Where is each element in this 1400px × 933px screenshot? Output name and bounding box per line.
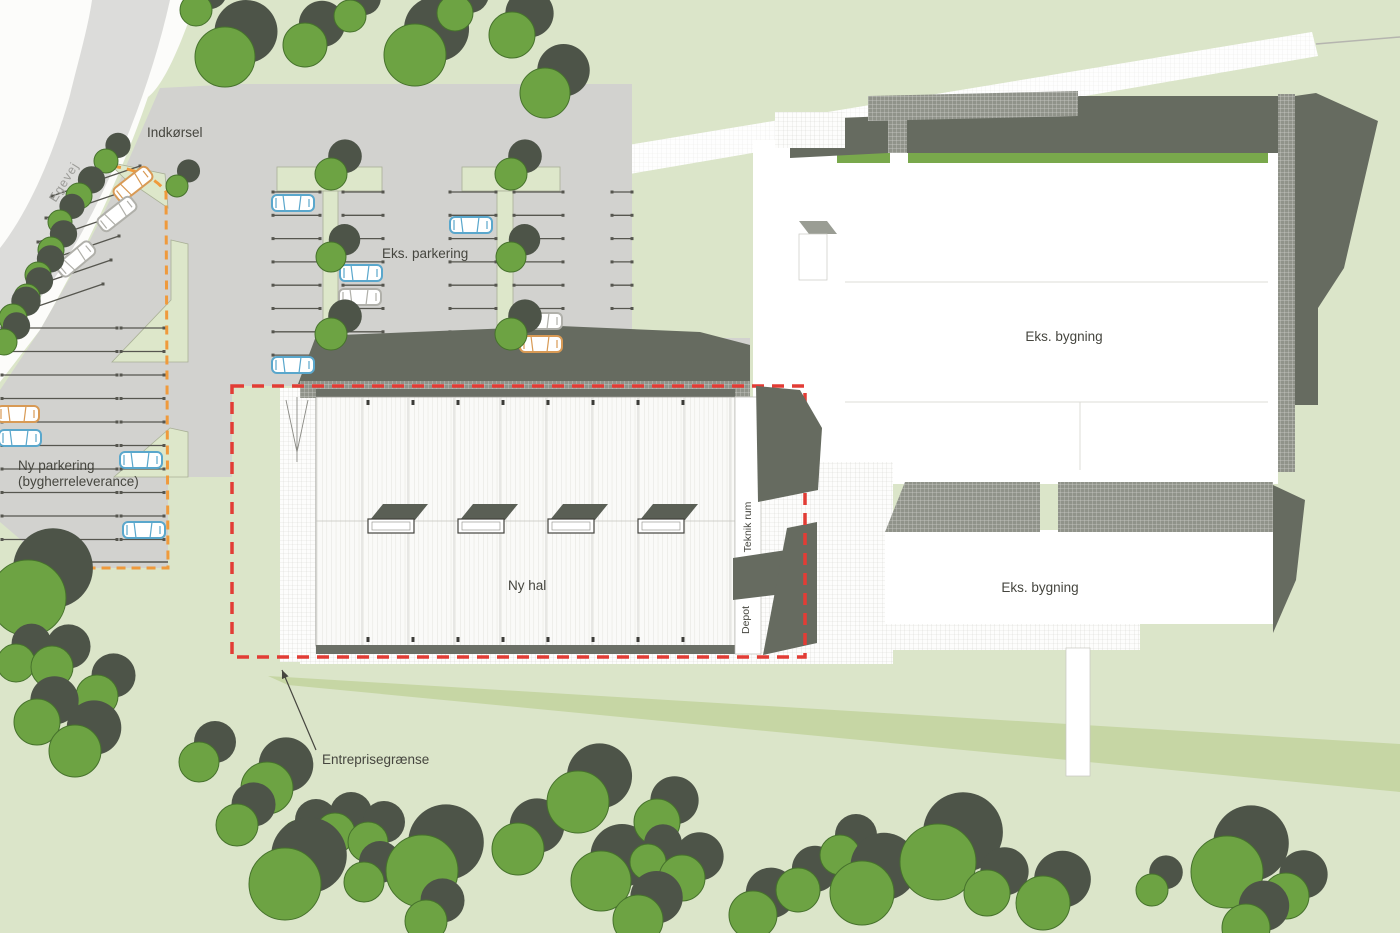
bay-tick	[272, 191, 275, 194]
south-apron-hatch	[820, 624, 1140, 650]
bay-tick	[631, 237, 634, 240]
car-body	[450, 217, 492, 233]
tree-crown	[216, 804, 258, 846]
bay-tick	[319, 284, 322, 287]
bay-tick	[163, 491, 166, 494]
roof-tick	[412, 637, 415, 642]
bay-tick	[342, 284, 345, 287]
car-body	[120, 452, 162, 468]
bay-tick	[120, 515, 123, 518]
bay-tick	[319, 237, 322, 240]
bay-tick	[449, 284, 452, 287]
bay-tick	[449, 214, 452, 217]
bay-tick	[45, 217, 48, 220]
tree-crown	[489, 12, 535, 58]
south-hatch-band-east	[1058, 482, 1273, 532]
roof-tick	[547, 400, 550, 405]
bay-tick	[1, 538, 4, 541]
east-hatch-band	[1278, 94, 1295, 472]
tree-crown	[283, 23, 327, 67]
depot-label: Depot	[740, 606, 752, 634]
bay-tick	[116, 374, 119, 377]
skylight	[368, 519, 414, 533]
site-boundary-label: Entreprisegrænse	[322, 752, 429, 767]
skylight	[548, 519, 594, 533]
bay-tick	[319, 307, 322, 310]
rooftop-box	[799, 234, 827, 280]
bay-tick	[272, 354, 275, 357]
roof-tick	[592, 637, 595, 642]
tree-crown	[249, 848, 321, 920]
roof-tick	[457, 637, 460, 642]
bay-tick	[1, 374, 4, 377]
bay-tick	[382, 214, 385, 217]
car	[272, 357, 314, 373]
tree-crown	[315, 318, 347, 350]
bay-tick	[495, 284, 498, 287]
bay-tick	[562, 237, 565, 240]
south-footpath	[1066, 648, 1090, 776]
bay-tick	[163, 421, 166, 424]
south-hatch-band-west	[885, 482, 1040, 532]
tree-crown	[334, 0, 366, 32]
bay-tick	[513, 214, 516, 217]
bay-tick	[118, 235, 121, 238]
car-body	[0, 406, 39, 422]
tree-crown	[179, 742, 219, 782]
bay-tick	[116, 468, 119, 471]
bay-tick	[272, 284, 275, 287]
car-body	[123, 522, 165, 538]
tree-crown	[0, 644, 35, 682]
car	[123, 522, 165, 538]
bay-tick	[120, 327, 123, 330]
bay-tick	[631, 307, 634, 310]
bay-tick	[611, 214, 614, 217]
new-parking-label-2: (bygherreleverance)	[18, 474, 139, 489]
tree-crown	[344, 862, 384, 902]
bay-tick	[319, 191, 322, 194]
roof-tick	[502, 637, 505, 642]
green-strip-gap	[890, 152, 908, 163]
tree-crown	[492, 823, 544, 875]
bay-tick	[449, 237, 452, 240]
bay-tick	[611, 307, 614, 310]
bay-tick	[449, 307, 452, 310]
bay-tick	[272, 330, 275, 333]
bay-tick	[611, 260, 614, 263]
bay-tick	[116, 538, 119, 541]
roof-tick	[637, 400, 640, 405]
tree-crown	[964, 870, 1010, 916]
bay-tick	[163, 538, 166, 541]
hall-apron-west	[280, 388, 318, 662]
bay-tick	[120, 491, 123, 494]
building-gap	[893, 460, 1278, 484]
tree-crown	[830, 861, 894, 925]
bay-tick	[120, 350, 123, 353]
new-parking-label-1: Ny parkering	[18, 458, 95, 473]
bay-tick	[562, 191, 565, 194]
tree-crown	[1136, 874, 1168, 906]
site-plan: Teknik rum Depot Egevej Indkørsel Eks. p…	[0, 0, 1400, 933]
north-building-roof	[753, 140, 1278, 472]
bay-tick	[116, 421, 119, 424]
bay-tick	[319, 214, 322, 217]
bay-tick	[513, 284, 516, 287]
tree-crown	[1016, 876, 1070, 930]
bay-tick	[495, 191, 498, 194]
existing-building-north-label: Eks. bygning	[1025, 329, 1102, 344]
car-body	[340, 265, 382, 281]
bay-tick	[272, 214, 275, 217]
bay-tick	[116, 515, 119, 518]
car	[340, 265, 382, 281]
bay-tick	[382, 330, 385, 333]
tree-crown	[776, 868, 820, 912]
bay-tick	[631, 214, 634, 217]
bay-tick	[495, 307, 498, 310]
bay-tick	[611, 284, 614, 287]
bay-tick	[163, 444, 166, 447]
bay-tick	[382, 307, 385, 310]
bay-tick	[110, 259, 113, 262]
bay-tick	[116, 397, 119, 400]
bay-tick	[116, 327, 119, 330]
bay-tick	[611, 191, 614, 194]
bay-tick	[495, 214, 498, 217]
bay-tick	[163, 374, 166, 377]
roof-tick	[547, 637, 550, 642]
south-building-roof	[885, 530, 1273, 624]
bay-tick	[382, 284, 385, 287]
tech-room-label: Teknik rum	[742, 501, 754, 552]
bay-tick	[116, 444, 119, 447]
bay-tick	[1, 468, 4, 471]
facade-hatch-column	[888, 96, 907, 153]
bay-tick	[1, 397, 4, 400]
facade-hatch-nw	[775, 112, 845, 148]
bay-tick	[37, 241, 40, 244]
bay-tick	[116, 491, 119, 494]
bay-tick	[611, 237, 614, 240]
tree-crown	[166, 175, 188, 197]
bay-tick	[120, 444, 123, 447]
bay-tick	[342, 214, 345, 217]
tree-crown	[495, 318, 527, 350]
bay-tick	[562, 260, 565, 263]
car	[120, 452, 162, 468]
roof-tick	[367, 637, 370, 642]
bay-tick	[272, 260, 275, 263]
car	[272, 195, 314, 211]
tree-crown	[437, 0, 473, 31]
bay-tick	[163, 350, 166, 353]
bay-tick	[562, 307, 565, 310]
tree-crown	[49, 725, 101, 777]
tree-crown	[495, 158, 527, 190]
bay-tick	[631, 260, 634, 263]
skylight	[458, 519, 504, 533]
bay-tick	[562, 214, 565, 217]
bay-tick	[120, 397, 123, 400]
bay-tick	[342, 191, 345, 194]
car	[0, 430, 41, 446]
car	[0, 406, 39, 422]
tree-crown	[520, 68, 570, 118]
bay-tick	[513, 191, 516, 194]
bay-tick	[382, 191, 385, 194]
bay-tick	[163, 468, 166, 471]
roof-tick	[502, 400, 505, 405]
hall-eave-south	[316, 645, 735, 654]
roof-tick	[367, 400, 370, 405]
car-body	[272, 357, 314, 373]
tree-crown	[496, 242, 526, 272]
bay-tick	[163, 397, 166, 400]
tree-crown	[729, 891, 777, 933]
bay-tick	[102, 283, 105, 286]
roof-tick	[412, 400, 415, 405]
existing-building-south-label: Eks. bygning	[1001, 580, 1078, 595]
entrance-label: Indkørsel	[147, 125, 203, 140]
bay-tick	[1, 515, 4, 518]
bay-tick	[495, 237, 498, 240]
tree-crown	[547, 771, 609, 833]
roof-tick	[457, 400, 460, 405]
bay-tick	[562, 284, 565, 287]
bay-tick	[382, 237, 385, 240]
roof-tick	[592, 400, 595, 405]
bay-tick	[449, 191, 452, 194]
tree-crown	[315, 158, 347, 190]
roof-tick	[637, 637, 640, 642]
bay-tick	[116, 350, 119, 353]
bay-tick	[272, 237, 275, 240]
tree-crown	[316, 242, 346, 272]
car-body	[0, 430, 41, 446]
bay-tick	[163, 327, 166, 330]
tree-crown	[384, 24, 446, 86]
roof-tick	[682, 637, 685, 642]
roof-tick	[682, 400, 685, 405]
bay-tick	[631, 191, 634, 194]
tree-crown	[180, 0, 212, 26]
bay-tick	[1, 491, 4, 494]
car-body	[272, 195, 314, 211]
bay-tick	[120, 421, 123, 424]
bay-tick	[272, 307, 275, 310]
car	[450, 217, 492, 233]
new-hall-label: Ny hal	[508, 578, 546, 593]
bay-tick	[631, 284, 634, 287]
bay-tick	[120, 374, 123, 377]
bay-tick	[120, 538, 123, 541]
new-hall: Teknik rum Depot	[280, 381, 808, 664]
existing-parking-label: Eks. parkering	[382, 246, 468, 261]
skylight	[638, 519, 684, 533]
tree-crown	[195, 27, 255, 87]
bay-tick	[163, 515, 166, 518]
